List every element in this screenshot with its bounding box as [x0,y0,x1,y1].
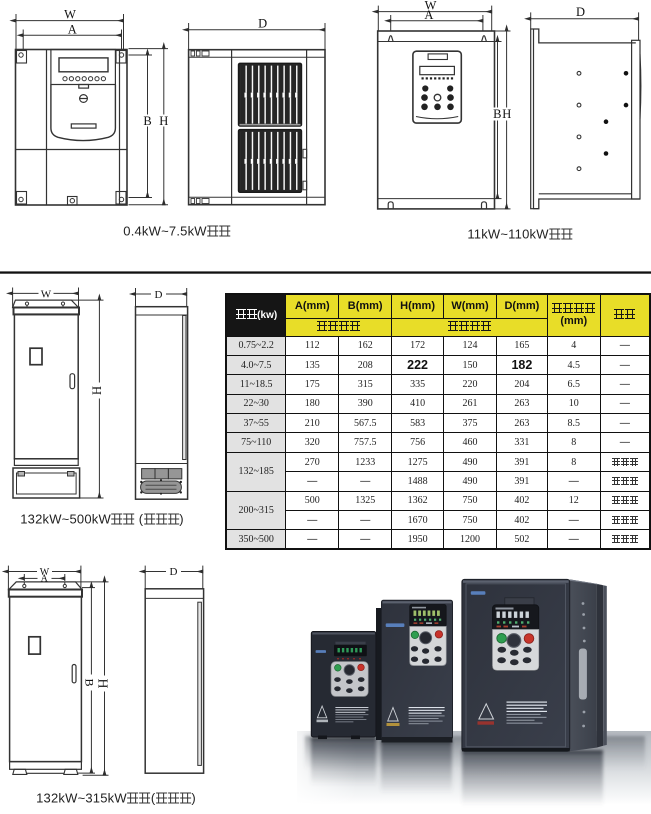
svg-text:H: H [502,107,511,121]
svg-text:H: H [95,679,110,689]
svg-text:B: B [143,114,151,128]
svg-text:D: D [155,289,163,301]
svg-text:D: D [576,5,585,19]
svg-text:A: A [68,22,77,36]
svg-text:W: W [64,7,76,21]
svg-text:D: D [258,17,267,31]
svg-text:W: W [41,288,52,300]
svg-text:D: D [170,566,178,578]
svg-text:B: B [83,678,97,686]
svg-text:A: A [41,574,49,585]
svg-text:B: B [493,107,501,121]
svg-text:H: H [89,386,103,395]
svg-text:A: A [424,8,433,22]
svg-text:H: H [159,114,168,128]
